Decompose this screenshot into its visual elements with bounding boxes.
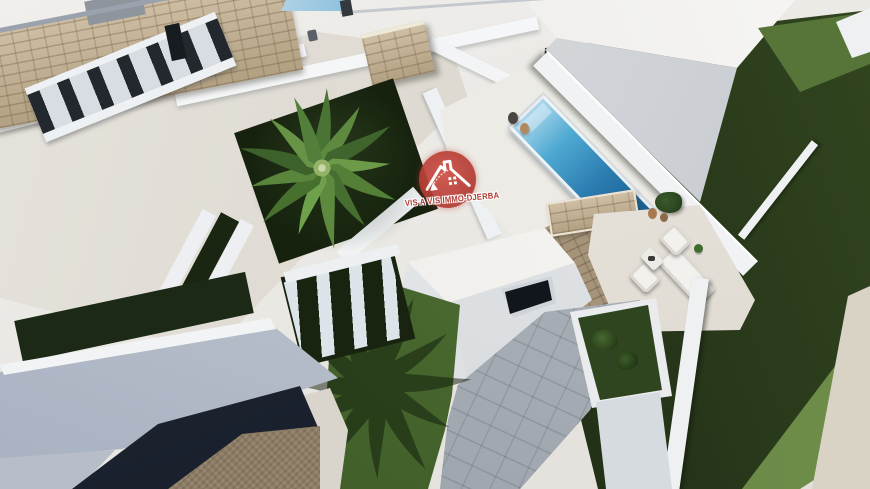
outdoor-armchair-1 xyxy=(658,223,692,257)
neighbour-roof-edge xyxy=(340,0,550,14)
garden-shrub-2 xyxy=(616,352,638,370)
neighbour-roof-post xyxy=(340,0,354,17)
neighbour-pool-glimpse xyxy=(281,0,347,11)
planter-pot-2 xyxy=(660,213,668,222)
grass-strip-bottomleft xyxy=(14,272,254,362)
roof-parapet-corner xyxy=(427,37,548,105)
planter-pot-1 xyxy=(648,208,657,219)
garden-wall-vertical xyxy=(662,277,709,489)
garden-wall-diagonal xyxy=(738,140,818,239)
outdoor-sofa xyxy=(657,244,717,306)
decor-amphora-dark xyxy=(508,112,518,124)
garden-shrub-1 xyxy=(592,330,618,350)
table-tray xyxy=(648,256,655,261)
render-canvas: VIS A VIS IMMO-DJERBA xyxy=(0,0,870,489)
decor-amphora-tan xyxy=(520,123,529,134)
roof-vent xyxy=(307,29,318,42)
potted-plant-small xyxy=(694,244,703,253)
palm-tree xyxy=(227,73,417,263)
terrace-shrub xyxy=(655,192,682,213)
